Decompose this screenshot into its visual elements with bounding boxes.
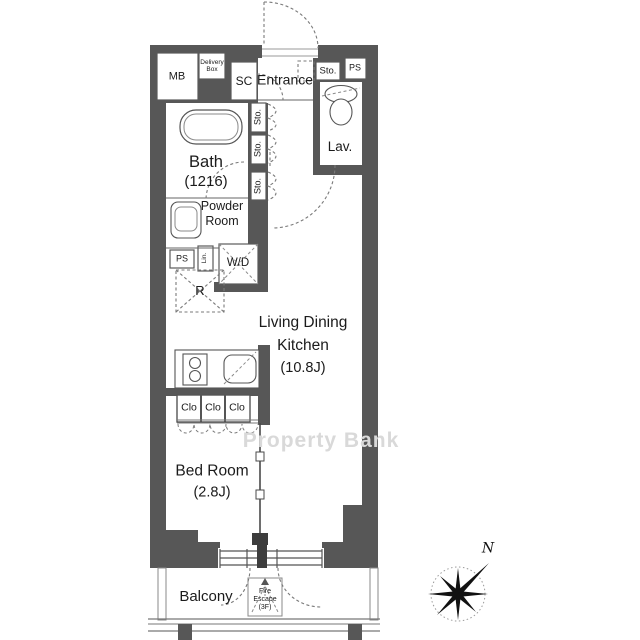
powder-room-label: Powder Room (201, 199, 243, 229)
watermark: Property Bank (243, 429, 400, 453)
delivery-box-line2: Box (200, 66, 223, 73)
balcony-post (348, 624, 362, 640)
lavatory-label: Lav. (328, 139, 353, 155)
closet-3-label: Clo (229, 402, 245, 415)
delivery-box-label: Delivery Box (200, 59, 223, 73)
hall-storage-door-2 (268, 135, 276, 163)
bedroom-size: (2.8J) (175, 483, 248, 505)
storage-top-label: Sto. (320, 65, 337, 76)
hall-storage-door-1 (268, 104, 276, 131)
powder-room-line1: Powder (201, 199, 243, 214)
ldk-size: (10.8J) (259, 357, 348, 379)
linen-label: Lin. (201, 253, 209, 263)
compass-north-label: N (482, 541, 494, 558)
ldk-label: Living Dining Kitchen (10.8J) (259, 311, 348, 379)
washer-dryer-label: W/D (227, 257, 249, 271)
balcony-window-swing-right (278, 568, 321, 607)
floor-plan: MB Delivery Box SC Entrance Sto. PS Lav.… (0, 0, 640, 640)
pipe-space-top-label: PS (349, 63, 361, 74)
bath-name: Bath (184, 153, 227, 173)
mailbox-label: MB (169, 70, 186, 83)
bathtub-icon (180, 110, 242, 144)
powder-sink-icon (171, 202, 201, 238)
fire-escape-line2: Escape (253, 596, 276, 604)
powder-room-line2: Room (201, 214, 243, 229)
pipe-space-mid-label: PS (176, 254, 188, 265)
closet-2-label: Clo (205, 402, 221, 415)
shoe-closet-label: SC (236, 74, 253, 88)
hall-storage-door-3 (268, 172, 276, 200)
hall-storage-3-label: Sto. (253, 178, 264, 194)
balcony-post (178, 624, 192, 640)
bedroom-name: Bed Room (175, 460, 248, 483)
stove-icon (183, 354, 207, 385)
compass-icon (428, 563, 489, 621)
balcony-label: Balcony (179, 588, 232, 606)
bedroom-label: Bed Room (2.8J) (175, 460, 248, 505)
entrance-label: Entrance (257, 72, 313, 89)
closet-1-label: Clo (181, 402, 197, 415)
ldk-line2: Kitchen (259, 334, 348, 357)
entrance-door-arc (264, 2, 318, 48)
bath-size: (1216) (184, 173, 227, 191)
delivery-box-line1: Delivery (200, 59, 223, 66)
ldk-line1: Living Dining (259, 311, 348, 334)
bath-label: Bath (1216) (184, 153, 227, 191)
fire-escape-line3: (3F) (253, 604, 276, 612)
fire-escape-label: Fire Escape (3F) (253, 588, 276, 612)
refrigerator-label: R (195, 283, 204, 299)
hall-storage-2-label: Sto. (253, 141, 264, 157)
kitchen-counter-icon (175, 350, 259, 388)
fire-escape-line1: Fire (253, 588, 276, 596)
balcony-window (218, 548, 324, 570)
hall-storage-1-label: Sto. (253, 109, 264, 125)
